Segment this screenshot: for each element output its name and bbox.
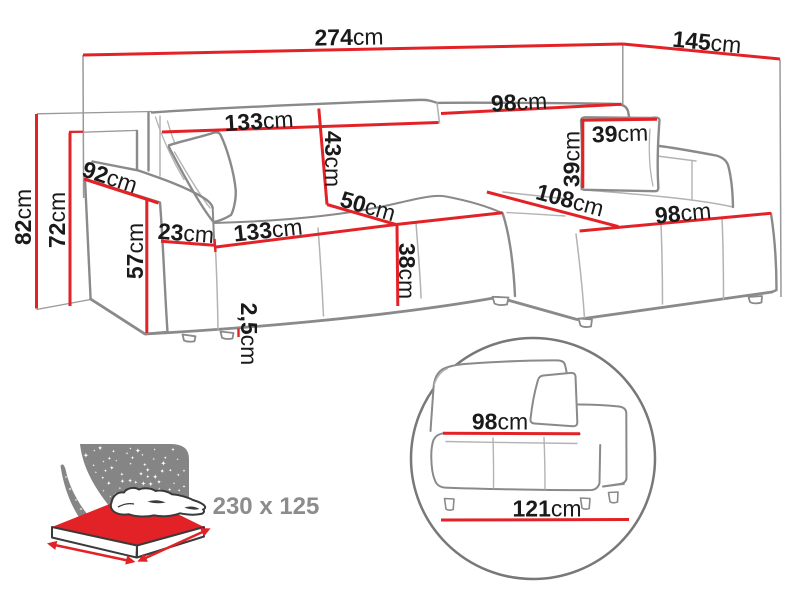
svg-text:43cm: 43cm — [320, 131, 346, 187]
svg-text:23cm: 23cm — [157, 218, 215, 248]
svg-text:57cm: 57cm — [122, 223, 148, 279]
svg-text:98cm: 98cm — [472, 409, 528, 435]
svg-text:98cm: 98cm — [490, 88, 548, 117]
svg-text:2,5cm: 2,5cm — [236, 303, 262, 366]
svg-text:82cm: 82cm — [10, 189, 36, 245]
svg-text:230 x 125: 230 x 125 — [213, 493, 320, 520]
svg-text:274cm: 274cm — [314, 23, 383, 50]
svg-text:38cm: 38cm — [394, 243, 420, 299]
svg-text:98cm: 98cm — [654, 197, 712, 228]
svg-text:72cm: 72cm — [44, 192, 70, 248]
svg-text:121cm: 121cm — [512, 496, 581, 522]
svg-text:133cm: 133cm — [224, 106, 295, 136]
svg-text:39cm: 39cm — [591, 120, 648, 148]
svg-text:39cm: 39cm — [559, 131, 585, 187]
